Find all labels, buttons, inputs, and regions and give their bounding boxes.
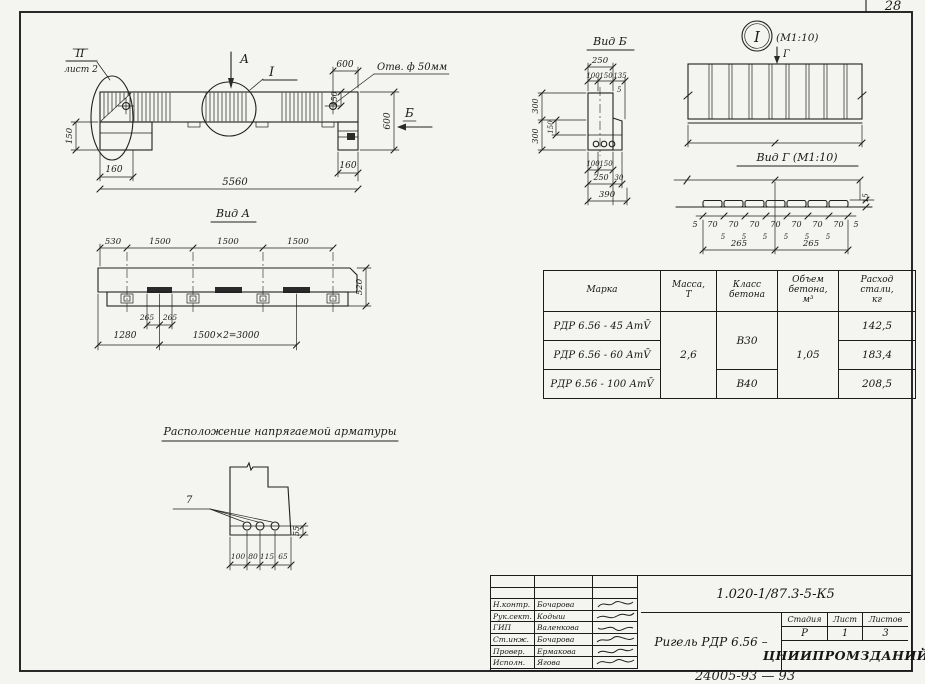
dim-100-rebar: 100 (231, 552, 246, 561)
signature-cell (593, 657, 638, 669)
drawing-sheet: 28 (0, 0, 925, 680)
section-b-arrow-label: Б (404, 106, 414, 120)
empty-cell (535, 576, 593, 588)
specification-table: Марка Масса, Т Класс бетона Объем бетона… (543, 270, 916, 399)
cell-class-b40: В40 (717, 370, 778, 399)
title-block-signatures: Н.контр. Бочарова Рук.сект. Кодыш ГИП Ва… (491, 576, 641, 669)
dim-1500-1: 1500 (149, 237, 171, 247)
dim-3000: 1500×2=3000 (193, 331, 260, 341)
elevation-callout-roman: II (75, 47, 85, 60)
person-name: Валенкова (535, 622, 593, 634)
dim-265-right: 265 (802, 239, 819, 249)
dim-70: 70 (707, 220, 717, 229)
page-number: 28 (884, 0, 902, 14)
stamp-note: 24005-93 — 93 (695, 669, 795, 684)
person-name: Ягова (535, 657, 593, 669)
title-block: Н.контр. Бочарова Рук.сект. Кодыш ГИП Ва… (490, 575, 912, 671)
signature-cell (593, 599, 638, 611)
drawing-title: Ригель РДР 6.56 – (641, 613, 782, 670)
dim-70: 70 (812, 220, 822, 229)
end-zone-hatch (101, 93, 131, 121)
empty-cell (593, 576, 638, 588)
col-header-steel: Расход стали, кг (839, 271, 916, 312)
dim-150-side: 150 (547, 120, 555, 134)
table-header-row: Марка Масса, Т Класс бетона Объем бетона… (544, 271, 916, 312)
dim-150-top: 150 (599, 72, 613, 80)
dim-5-gap: 5 (721, 233, 726, 241)
signature-cell (593, 611, 638, 623)
person-name: Бочарова (535, 634, 593, 646)
rebar-linework (162, 441, 398, 570)
dim-250-bot: 250 (592, 173, 608, 182)
cell-steel-2: 183,4 (839, 341, 916, 370)
dim-5-gap: 5 (784, 233, 789, 241)
signature-scribble (595, 622, 635, 633)
dim-1280: 1280 (114, 331, 137, 341)
elevation-callout-sheet: лист 2 (64, 65, 98, 75)
person-name: Бочарова (535, 599, 593, 611)
cell-class-b30: В30 (717, 312, 778, 370)
dim-150-ledge: 150 (65, 127, 75, 144)
role-label: Н.контр. (491, 599, 535, 611)
organization-name: ЦНИИПРОМЗДАНИЙ (782, 641, 910, 670)
dim-5-left-g: 5 (692, 220, 697, 229)
dim-70: 70 (833, 220, 843, 229)
rebar-label-7: 7 (186, 495, 193, 506)
col-header-mark: Марка (544, 271, 661, 312)
dim-520: 520 (355, 278, 365, 295)
corrugation-hatch (130, 93, 322, 121)
dim-115-rebar: 115 (260, 552, 275, 561)
role-label: Провер. (491, 646, 535, 658)
dim-1500-3: 1500 (287, 237, 309, 247)
role-label: Ст.инж. (491, 634, 535, 646)
dim-160-right: 160 (339, 161, 356, 171)
cell-steel-3: 208,5 (839, 370, 916, 399)
dim-530: 530 (105, 237, 122, 247)
dim-150-hole: 150 (330, 91, 339, 106)
cell-volume: 1,05 (778, 312, 839, 399)
signature-scribble (595, 611, 635, 622)
signature-scribble (595, 599, 635, 610)
empty-cell (491, 588, 535, 600)
dim-5-b: 5 (617, 86, 622, 94)
view-b-title: Вид Б (592, 35, 627, 48)
dim-70: 70 (770, 220, 780, 229)
dim-150-bot: 150 (599, 160, 613, 168)
cell-mark-3: РДР 6.56 - 100 АтV̄ (544, 370, 661, 399)
dim-30: 30 (615, 174, 624, 182)
detail-i-mark: I (268, 65, 275, 80)
role-label: Исполн. (491, 657, 535, 669)
dim-600-top: 600 (336, 60, 353, 70)
table-row: РДР 6.56 - 100 АтV̄ В40 208,5 (544, 370, 916, 399)
signature-cell (593, 622, 638, 634)
hole-note: Отв. ф 50мм (377, 62, 447, 73)
signature-cell (593, 634, 638, 646)
table-row: РДР 6.56 - 45 АтV̄ 2,6 В30 1,05 142,5 (544, 312, 916, 341)
sheets-label: Листов (863, 613, 908, 627)
empty-cell (491, 576, 535, 588)
dim-5-right-g: 5 (853, 220, 858, 229)
detail-i-linework (684, 21, 866, 166)
person-name: Кодыш (535, 611, 593, 623)
stage-label: Стадия (782, 613, 828, 627)
empty-cell (535, 588, 593, 600)
stage-value: Р (782, 627, 828, 641)
detail-i-scale: (М1:10) (776, 32, 819, 44)
dim-600-height: 600 (383, 112, 393, 129)
dim-80-rebar: 80 (248, 552, 258, 561)
role-label: Рук.сект. (491, 611, 535, 623)
signature-cell (593, 646, 638, 658)
cell-mass: 2,6 (661, 312, 717, 399)
dim-300-top: 300 (531, 98, 540, 113)
sheet-value: 1 (828, 627, 863, 641)
dim-250-top: 250 (591, 56, 609, 66)
view-g-linework (674, 176, 874, 254)
section-a-arrow-label: А (239, 52, 249, 66)
dim-5-gap: 5 (826, 233, 831, 241)
view-g-title: Вид Г (М1:10) (756, 151, 838, 164)
dim-5-gap: 5 (763, 233, 768, 241)
detail-i-circle-mark: I (753, 28, 761, 46)
arrow-g-label: Г (782, 49, 790, 60)
dim-70: 70 (749, 220, 759, 229)
empty-cell (593, 588, 638, 600)
stage-sheet-block: Стадия Лист Листов Р 1 3 ЦНИИПРОМЗДАНИЙ (782, 613, 910, 670)
title-block-main: 1.020-1/87.3-5-К5 Ригель РДР 6.56 – Стад… (641, 576, 910, 669)
dim-300-bot: 300 (531, 128, 540, 143)
doc-number: 1.020-1/87.3-5-К5 (641, 576, 910, 613)
view-a-title: Вид А (215, 207, 250, 220)
signature-scribble (595, 646, 635, 657)
cell-mark-2: РДР 6.56 - 60 АтV̄ (544, 341, 661, 370)
signature-scribble (595, 657, 635, 668)
dim-65-rebar: 65 (278, 552, 288, 561)
dim-135: 135 (613, 72, 627, 80)
col-header-volume: Объем бетона, м³ (778, 271, 839, 312)
person-name: Ермакова (535, 646, 593, 658)
sheet-label: Лист (828, 613, 863, 627)
rebar-title: Расположение напрягаемой арматуры (162, 425, 396, 438)
dim-265-1: 265 (139, 313, 155, 322)
cell-steel-1: 142,5 (839, 312, 916, 341)
dim-70: 70 (791, 220, 801, 229)
dim-5560-length: 5560 (222, 177, 248, 188)
dim-265-2: 265 (162, 313, 178, 322)
dim-160-left: 160 (105, 165, 122, 175)
sheets-value: 3 (863, 627, 908, 641)
col-header-mass: Масса, Т (661, 271, 717, 312)
dim-1500-2: 1500 (217, 237, 239, 247)
dim-390: 390 (599, 190, 616, 200)
signature-scribble (595, 634, 635, 645)
dim-55: 55 (292, 526, 301, 536)
dim-70: 70 (728, 220, 738, 229)
dim-100-top: 100 (586, 72, 600, 80)
role-label: ГИП (491, 622, 535, 634)
col-header-class: Класс бетона (717, 271, 778, 312)
dim-100-bot: 100 (586, 160, 600, 168)
dim-15: 15 (861, 193, 870, 203)
cell-mark-1: РДР 6.56 - 45 АтV̄ (544, 312, 661, 341)
dim-265-left: 265 (730, 239, 747, 249)
detail-oval-callout (91, 76, 133, 160)
